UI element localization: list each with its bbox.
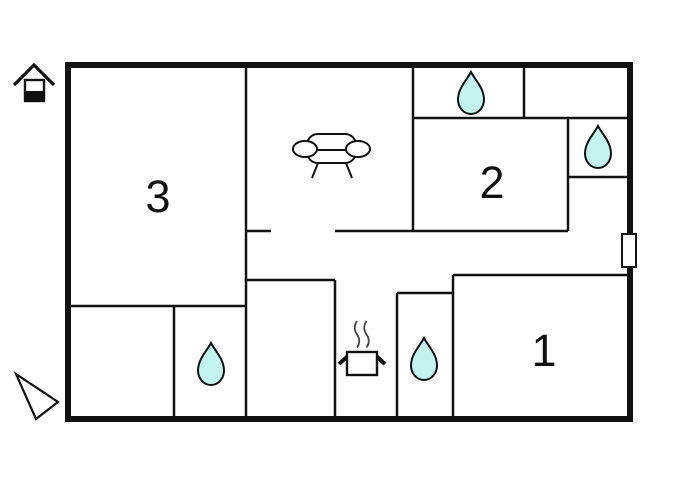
water-drop-icon xyxy=(458,72,484,114)
water-drop-icon xyxy=(198,343,224,385)
water-drop-icon xyxy=(585,126,611,168)
steam-line xyxy=(364,321,369,348)
house-icon xyxy=(14,65,54,101)
triangle-pointer-icon xyxy=(16,374,58,419)
steam-line xyxy=(355,321,360,348)
room-label-2: 2 xyxy=(479,157,504,208)
water-drop-icon xyxy=(411,338,437,380)
door-window-marker xyxy=(622,234,636,267)
floorplan-canvas: 3 2 1 xyxy=(0,0,700,500)
room-label-1: 1 xyxy=(531,325,556,376)
floorplan-svg: 3 2 1 xyxy=(0,0,700,500)
room-label-3: 3 xyxy=(145,171,170,222)
sofa-icon xyxy=(293,134,370,178)
stove-pot-icon xyxy=(339,321,385,375)
